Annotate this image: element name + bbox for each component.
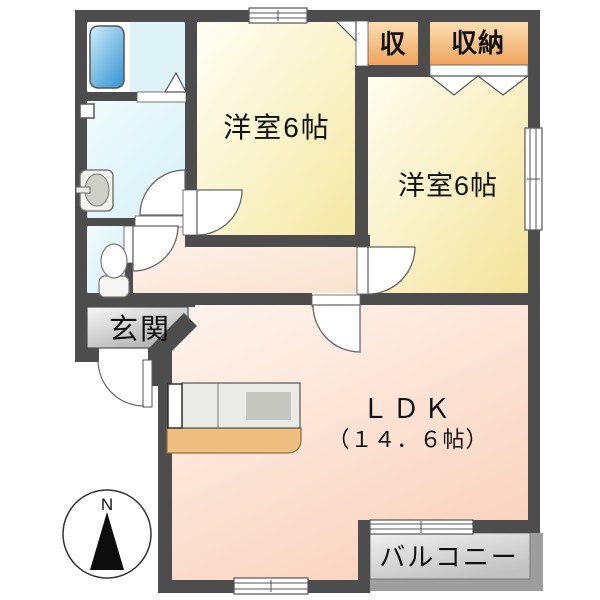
toilet-icon [99, 244, 129, 297]
bedroom2-label: 洋室6帖 [398, 171, 498, 201]
washbasin-icon [76, 170, 113, 211]
bathroom-door-opening [137, 92, 186, 102]
closet-door-opening [430, 65, 528, 76]
stove-icon [246, 392, 291, 420]
ldk-size-label: （１４．６帖） [327, 427, 488, 452]
kitchen-counter-icon [167, 383, 301, 453]
bedroom1-top-window [249, 8, 307, 23]
balcony-label: バルコニー [379, 542, 518, 572]
storage-door-opening [356, 21, 368, 66]
closet-label: 収納 [451, 28, 505, 58]
bathtub-icon [90, 26, 124, 88]
floorplan-svg: N 洋室6帖 洋室6帖 収 収納 玄関 ＬＤＫ （１４．６帖） バルコニー [0, 0, 600, 600]
entrance-door-swing [98, 360, 144, 406]
floorplan: N 洋室6帖 洋室6帖 収 収納 玄関 ＬＤＫ （１４．６帖） バルコニー [0, 0, 600, 600]
entrance-label: 玄関 [109, 313, 171, 346]
balcony-window [370, 520, 473, 534]
storage-small-label: 収 [379, 29, 406, 59]
compass-icon: N [63, 490, 151, 578]
washroom-small-window [80, 104, 94, 118]
bedroom2-door-opening [357, 247, 369, 294]
kitchen-end-panel [168, 384, 182, 428]
ldk-bottom-window [234, 578, 308, 594]
ldk-label: ＬＤＫ [362, 394, 455, 424]
compass-north-label: N [101, 495, 113, 514]
entrance-door-leaf [143, 360, 152, 407]
balcony-rim-bottom [362, 578, 543, 591]
bedroom1-label: 洋室6帖 [223, 112, 331, 143]
bedroom2-right-window [525, 128, 542, 230]
